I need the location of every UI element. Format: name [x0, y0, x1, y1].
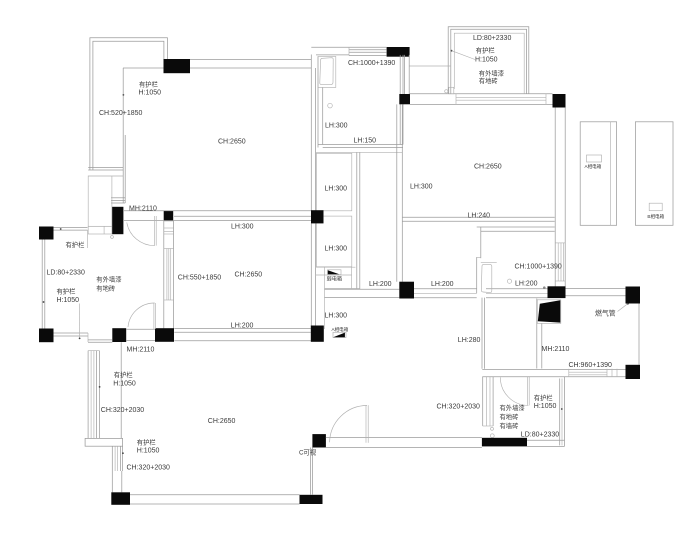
svg-text:MH:2110: MH:2110: [542, 346, 570, 353]
svg-text:LD:80+2330: LD:80+2330: [473, 35, 511, 42]
svg-text:LH:300: LH:300: [325, 186, 348, 193]
svg-text:有外墙漆: 有外墙漆: [479, 69, 505, 78]
svg-text:LD:80+2330: LD:80+2330: [521, 432, 559, 439]
svg-text:有护栏: 有护栏: [534, 393, 553, 402]
svg-text:H:1050: H:1050: [137, 447, 160, 454]
svg-text:LH:150: LH:150: [354, 138, 377, 145]
svg-text:CH:2650: CH:2650: [235, 272, 263, 279]
svg-text:CH:320+2030: CH:320+2030: [127, 465, 171, 472]
svg-text:LH:300: LH:300: [325, 122, 348, 129]
svg-text:LH:200: LH:200: [515, 280, 538, 287]
svg-text:有外墙漆: 有外墙漆: [500, 403, 526, 412]
svg-text:CH:320+2030: CH:320+2030: [437, 403, 481, 410]
svg-text:有地砖: 有地砖: [479, 76, 499, 85]
svg-text:LH:300: LH:300: [325, 246, 348, 253]
svg-text:有地砖: 有地砖: [500, 412, 520, 421]
svg-text:LH:300: LH:300: [231, 224, 254, 231]
svg-text:MH:2110: MH:2110: [127, 346, 155, 353]
svg-text:CH:2650: CH:2650: [218, 139, 246, 146]
svg-text:LH:200: LH:200: [231, 323, 254, 330]
svg-text:CH:320+2030: CH:320+2030: [101, 407, 145, 414]
svg-text:LH:240: LH:240: [468, 213, 491, 220]
svg-text:LH:300: LH:300: [410, 184, 433, 191]
svg-text:CH:520+1850: CH:520+1850: [99, 110, 143, 117]
svg-text:LH:200: LH:200: [431, 281, 454, 288]
svg-text:LH:300: LH:300: [325, 313, 348, 320]
svg-text:H:1050: H:1050: [113, 381, 136, 388]
svg-text:有地砖: 有地砖: [96, 283, 116, 292]
svg-text:CH:960+1390: CH:960+1390: [569, 362, 613, 369]
svg-text:有外墙漆: 有外墙漆: [96, 275, 122, 284]
svg-text:有墙砖: 有墙砖: [500, 421, 520, 430]
svg-text:LH:200: LH:200: [369, 281, 392, 288]
svg-text:有护栏: 有护栏: [476, 46, 495, 55]
svg-text:LH:280: LH:280: [458, 337, 481, 344]
svg-text:有护栏: 有护栏: [137, 437, 156, 446]
svg-text:CH:1000+1390: CH:1000+1390: [515, 263, 562, 270]
svg-text:弱电箱: 弱电箱: [327, 275, 343, 283]
svg-text:CH:2650: CH:2650: [474, 163, 502, 170]
svg-text:有护栏: 有护栏: [57, 287, 76, 296]
svg-text:A相电箱: A相电箱: [585, 163, 602, 170]
svg-text:燃气管: 燃气管: [595, 309, 616, 318]
svg-text:CH:2650: CH:2650: [208, 418, 236, 425]
svg-text:MH:2110: MH:2110: [129, 205, 157, 212]
svg-text:H:1050: H:1050: [57, 297, 80, 304]
svg-text:H:1050: H:1050: [475, 57, 498, 64]
svg-text:有护栏: 有护栏: [139, 80, 158, 89]
svg-text:有护栏: 有护栏: [114, 370, 133, 379]
svg-text:C可视: C可视: [299, 448, 317, 457]
svg-text:有护栏: 有护栏: [66, 240, 85, 249]
svg-text:B相电箱: B相电箱: [647, 213, 664, 220]
svg-text:H:1050: H:1050: [534, 403, 557, 410]
svg-text:LD:80+2330: LD:80+2330: [47, 270, 85, 277]
svg-text:CH:550+1850: CH:550+1850: [178, 275, 222, 282]
svg-text:H:1050: H:1050: [139, 90, 162, 97]
svg-text:CH:1000+1390: CH:1000+1390: [348, 60, 395, 67]
